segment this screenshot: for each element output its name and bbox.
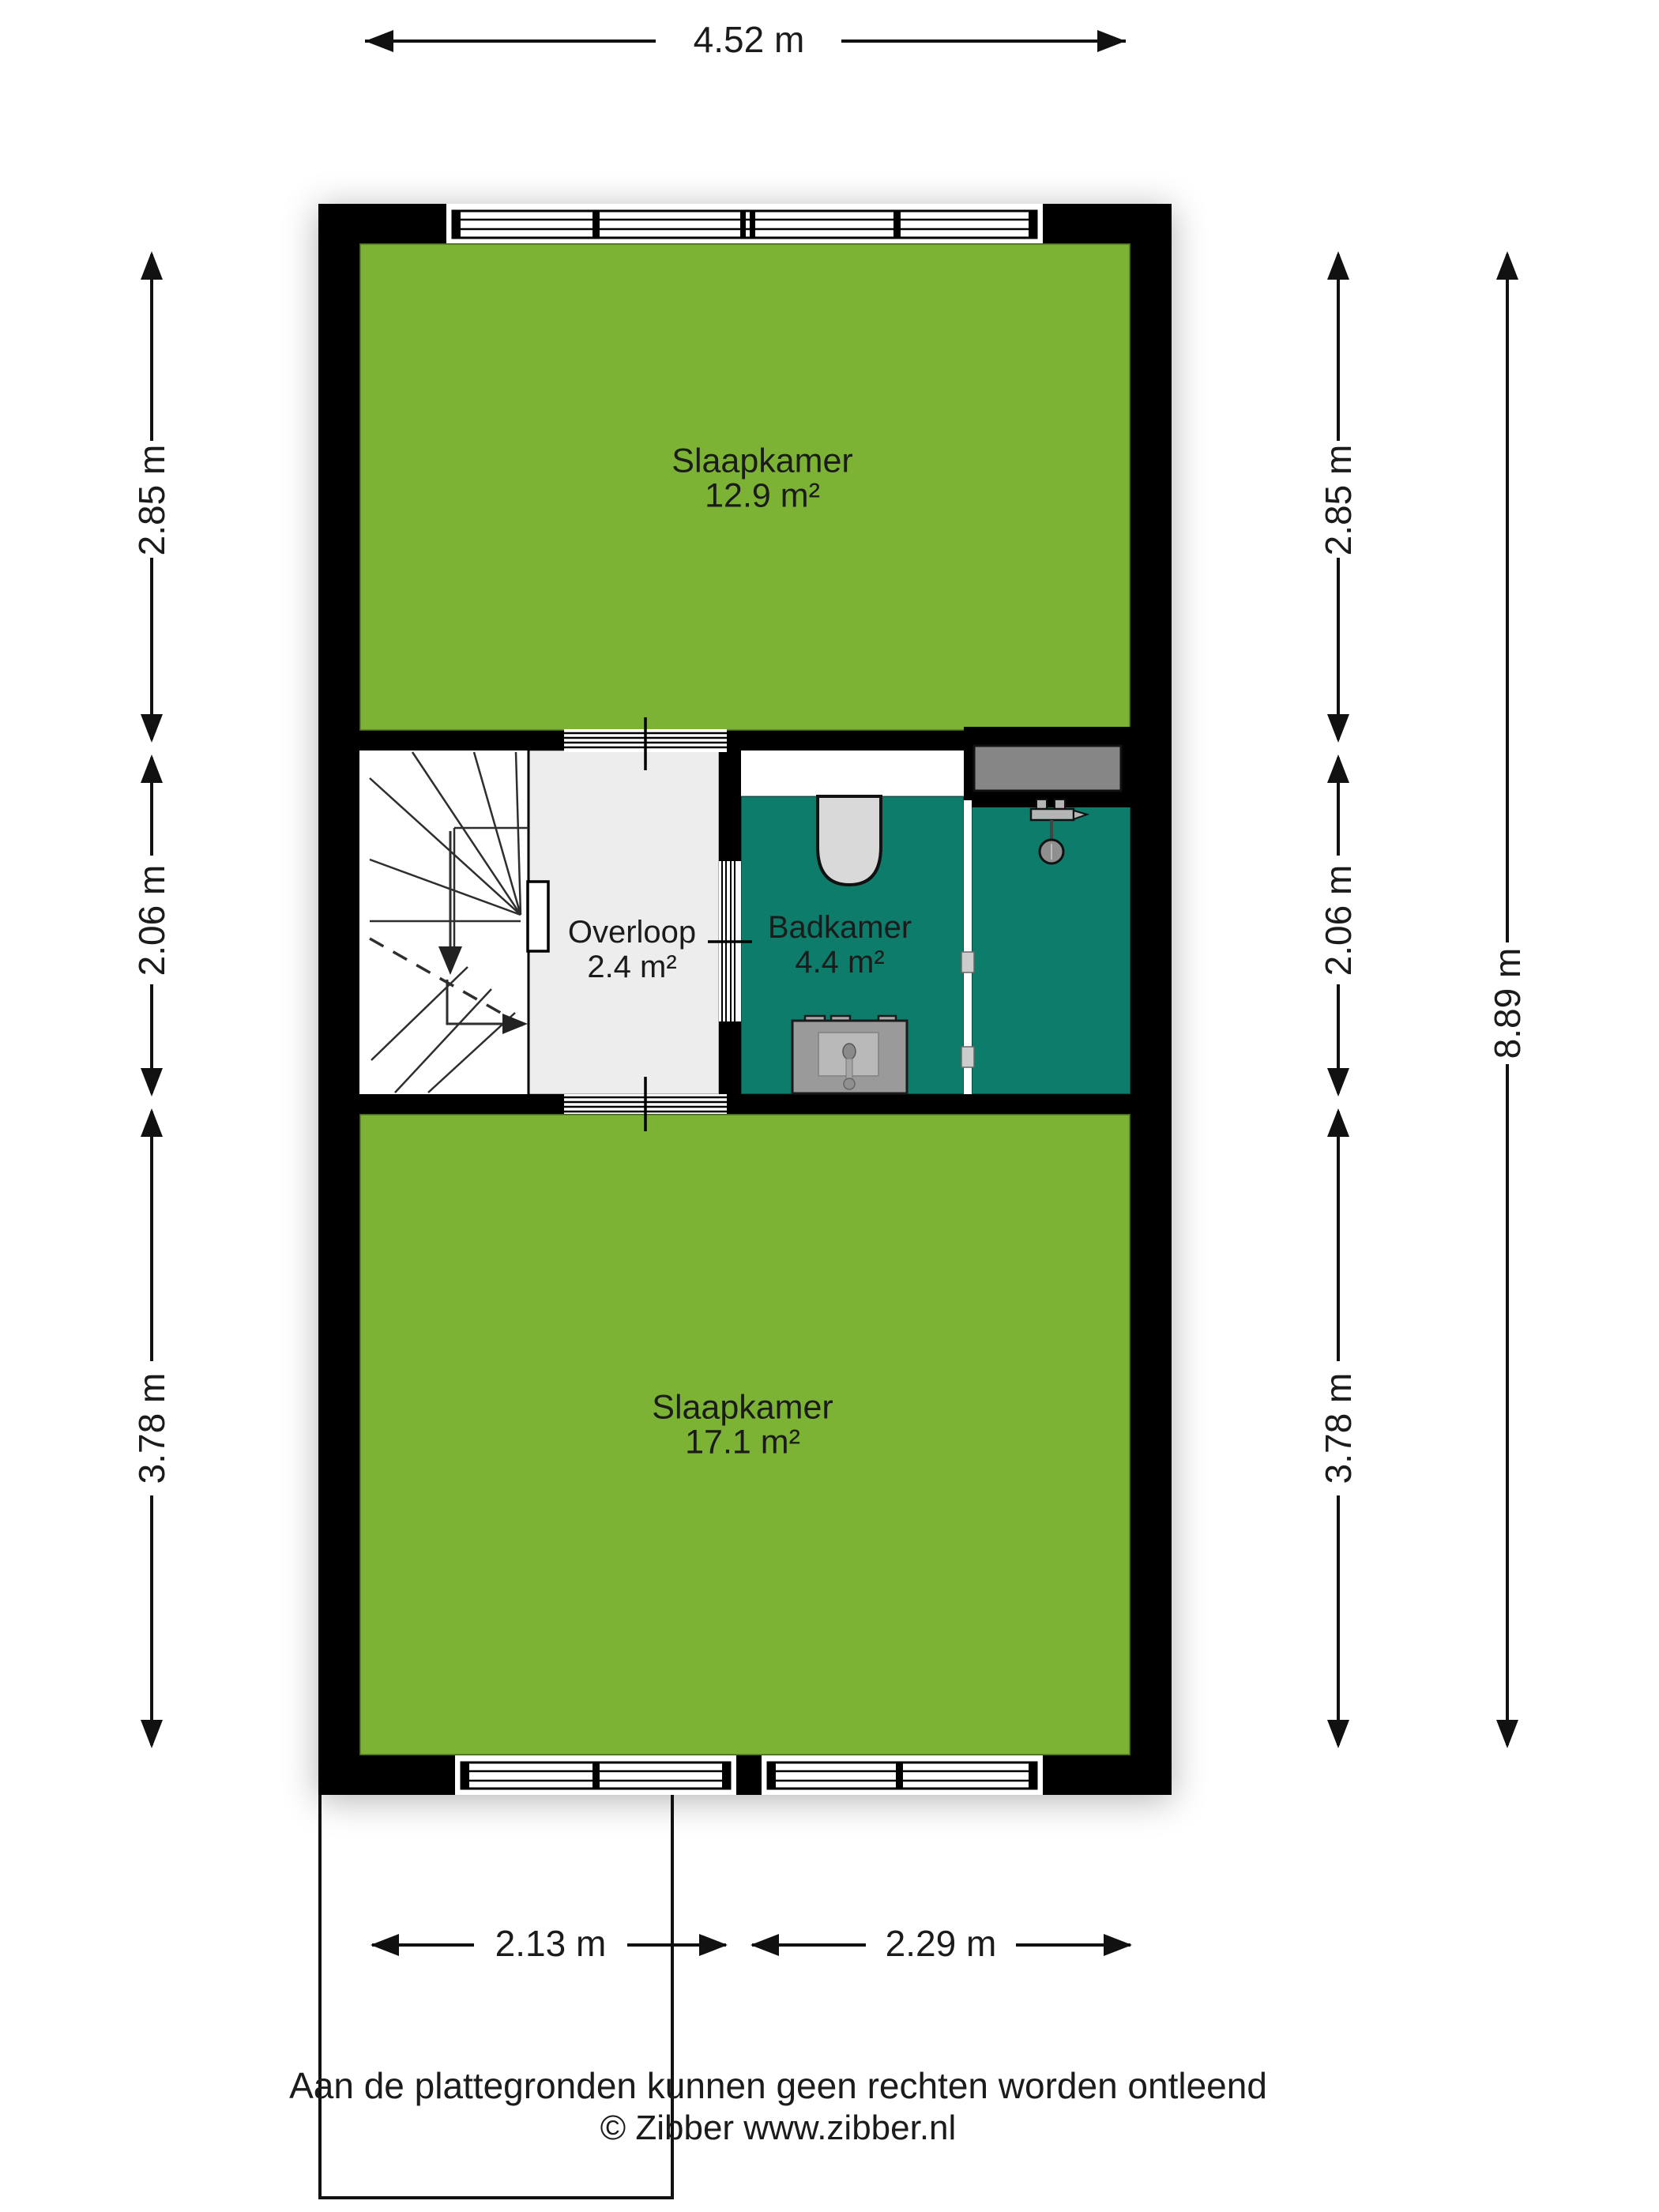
wall-left bbox=[318, 204, 359, 1795]
dim-label-right-2: 2.06 m bbox=[1320, 865, 1356, 976]
dim-label-left-3: 3.78 m bbox=[134, 1373, 170, 1484]
washbasin-icon bbox=[792, 1016, 907, 1093]
dim-label-left-2: 2.06 m bbox=[134, 865, 170, 976]
room-area-bedroom-top: 12.9 m² bbox=[705, 480, 820, 513]
shelf bbox=[974, 746, 1121, 791]
room-area-bathroom: 4.4 m² bbox=[795, 946, 884, 978]
window-top bbox=[446, 204, 1043, 243]
room-label-bedroom-top: Slaapkamer bbox=[671, 445, 852, 479]
room-area-bedroom-bottom: 17.1 m² bbox=[685, 1426, 800, 1460]
footer-copyright: © Zibber www.zibber.nl bbox=[600, 2111, 957, 2146]
footer-disclaimer: Aan de plattegronden kunnen geen rechten… bbox=[289, 2067, 1267, 2104]
dim-label-bottom-1: 2.13 m bbox=[495, 1925, 607, 1962]
bathroom-fixture-strip bbox=[741, 750, 964, 796]
dim-label-total-height: 8.89 m bbox=[1489, 948, 1525, 1059]
room-label-bathroom: Badkamer bbox=[768, 912, 912, 943]
wall-bottom bbox=[318, 1755, 1172, 1795]
dim-label-top: 4.52 m bbox=[694, 21, 805, 58]
window-bottom-right bbox=[762, 1755, 1043, 1795]
wall-right bbox=[1130, 204, 1172, 1795]
room-label-bedroom-bottom: Slaapkamer bbox=[652, 1391, 833, 1425]
toilet-icon bbox=[818, 796, 881, 885]
door-leaf-landing bbox=[528, 882, 548, 951]
room-label-landing: Overloop bbox=[568, 916, 696, 948]
window-bottom-left bbox=[455, 1755, 736, 1795]
room-stairwell bbox=[359, 750, 529, 1094]
dim-label-bottom-2: 2.29 m bbox=[886, 1925, 997, 1962]
dim-label-left-1: 2.85 m bbox=[134, 445, 170, 556]
dim-label-right-1: 2.85 m bbox=[1320, 445, 1356, 556]
room-area-landing: 2.4 m² bbox=[587, 951, 676, 983]
floorplan-page: Slaapkamer 12.9 m² Overloop 2.4 m² Badka… bbox=[0, 0, 1659, 2212]
floorplan-drawing bbox=[0, 0, 1659, 2212]
wall-interior-lower bbox=[359, 1094, 1130, 1114]
dim-label-right-3: 3.78 m bbox=[1320, 1373, 1356, 1484]
